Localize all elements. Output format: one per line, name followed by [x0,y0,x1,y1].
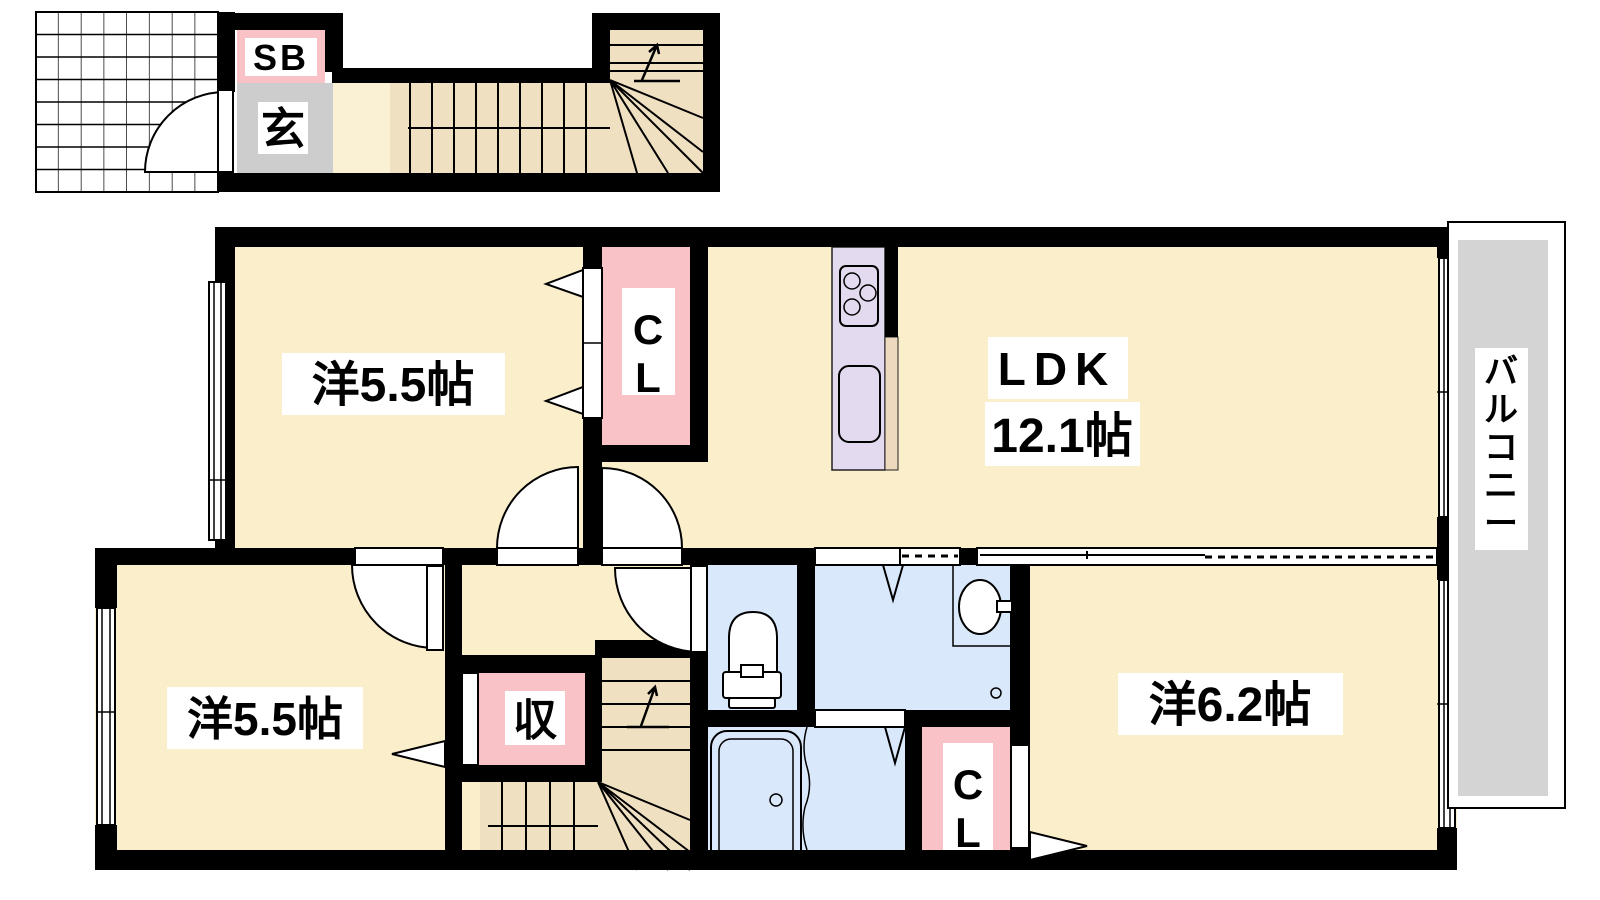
bedroom2-door-leaf [427,566,443,650]
balcony: バ ル コ ニ ー [1448,222,1565,808]
floor-plan-canvas: SB 玄 [0,0,1600,900]
bedroom1-door-opening [497,548,578,565]
svg-text:ー: ー [1484,505,1518,543]
washroom-door-opening [815,548,900,565]
svg-text:バ: バ [1484,353,1518,391]
main-unit: バ ル コ ニ ー 洋5.5帖 LDK 12.1帖 洋5.5帖 洋6.2帖 C … [95,222,1565,870]
staircase-upper [390,30,703,173]
storage-door-leaf [462,673,478,765]
ldk-label: LDK [998,343,1117,395]
svg-text:ル: ル [1484,391,1518,429]
toilet-door-leaf [691,566,707,652]
bedroom2-label: 洋5.5帖 [187,693,343,745]
window-bedroom2 [97,608,115,825]
closet2-door-leaf [1011,745,1029,848]
ldk-size-label: 12.1帖 [991,410,1132,463]
svg-text:ニ: ニ [1484,467,1518,505]
closet2-label-l: L [955,809,981,856]
closet1-label-l: L [635,354,661,401]
closet1-label-c: C [633,306,663,353]
entrance-strip: SB 玄 [36,12,720,192]
storage-label: 収 [513,696,557,745]
entrance-door-leaf [218,90,233,172]
balcony-label: バ ル コ ニ ー [1484,353,1518,543]
ldk-door-opening [602,548,682,565]
bedroom1-label: 洋5.5帖 [312,359,475,412]
bathroom-door-opening [815,710,905,727]
closet2-label-c: C [953,761,983,808]
window-bedroom1 [209,282,226,540]
genkan-label: 玄 [261,105,305,154]
bedroom2-door-opening [355,548,443,565]
toilet-icon [723,612,781,708]
svg-text:コ: コ [1484,429,1518,467]
bathroom [708,727,905,850]
entrance-hall-floor [333,83,390,173]
bedroom3-label: 洋6.2帖 [1149,679,1312,732]
floor-plan: SB 玄 [0,0,1600,900]
shoe-box-label: SB [253,37,309,78]
